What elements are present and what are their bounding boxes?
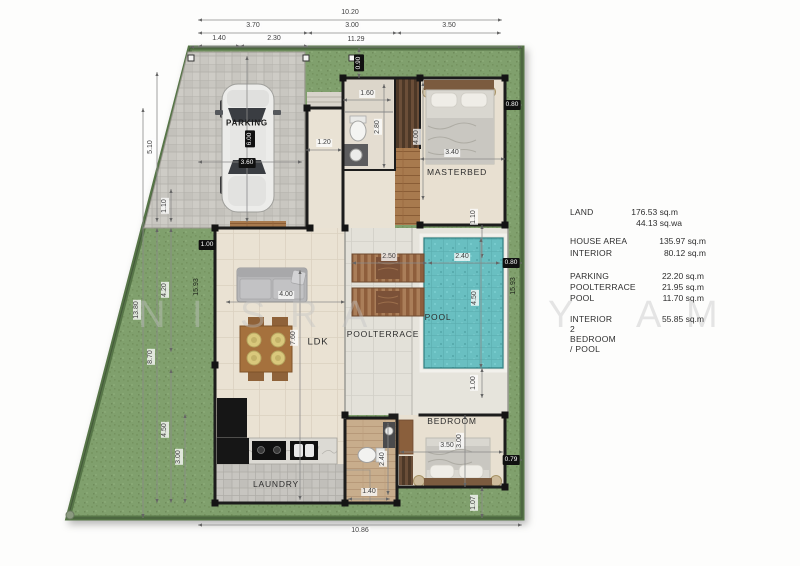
summary-value: 176.53 sq.m xyxy=(598,207,678,217)
summary-value: 11.70 sq.m xyxy=(624,293,704,303)
plan-tagline: 2 BEDROOM / POOL xyxy=(570,324,616,354)
summary-label: POOL xyxy=(570,293,594,303)
room-label-bedroom: BEDROOM xyxy=(427,416,477,426)
summary-value: 55.85 sq.m xyxy=(624,314,704,324)
room-label-pool: POOL xyxy=(425,312,452,322)
summary-value: 21.95 sq.m xyxy=(624,282,704,292)
summary-value: 44.13 sq.wa xyxy=(602,218,682,228)
room-label-ldk: LDK xyxy=(308,337,329,348)
summary-value: 135.97 sq.m xyxy=(626,236,706,246)
summary-label: HOUSE AREA xyxy=(570,236,627,246)
room-label-parking: PARKING xyxy=(226,119,268,128)
summary-value: 80.12 sq.m xyxy=(626,248,706,258)
summary-value: 22.20 sq.m xyxy=(624,271,704,281)
summary-label: INTERIOR xyxy=(570,314,612,324)
summary-label: PARKING xyxy=(570,271,609,281)
room-label-poolterrace: POOLTERRACE xyxy=(347,329,419,339)
summary-label: INTERIOR xyxy=(570,248,612,258)
floor-plan-page: NISRAYAM 10.203.703.003.501.402.3011.291… xyxy=(0,0,800,566)
summary-label: LAND xyxy=(570,207,593,217)
room-label-laundry: LAUNDRY xyxy=(253,479,299,489)
room-label-masterbed: MASTERBED xyxy=(427,167,487,177)
